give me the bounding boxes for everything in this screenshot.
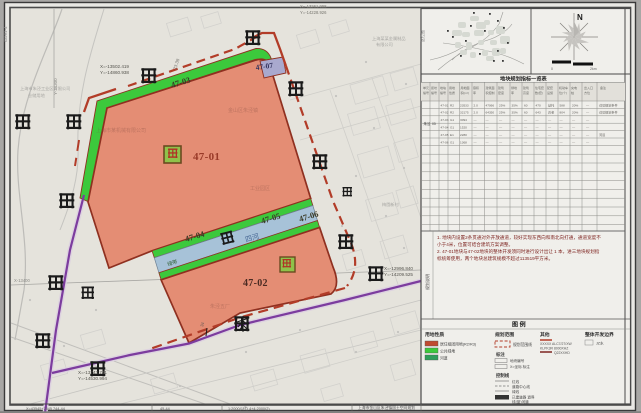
svg-text:积控制: 积控制 [486,90,495,95]
svg-text:45-44: 45-44 [160,407,170,411]
svg-text:Y=-14209.525: Y=-14209.525 [384,272,413,277]
svg-text:道路中心线: 道路中心线 [512,384,530,389]
svg-text:公共绿地: 公共绿地 [440,349,455,354]
svg-text:建筑: 建筑 [498,85,504,90]
svg-text:方位: 方位 [584,90,590,95]
svg-text:47-05: 47-05 [441,133,449,137]
svg-text:47-06: 47-06 [441,140,449,144]
svg-text:标统筹使用，两个地块总建筑规模不超过113519平方米。: 标统筹使用，两个地块总建筑规模不超过113519平方米。 [437,255,553,262]
svg-text:单元: 单元 [423,85,429,90]
svg-text:率: 率 [473,90,476,95]
svg-text:居住组团用地(R2/R3): 居住组团用地(R2/R3) [440,342,477,347]
svg-text:1:2000(1代) 4+4:2000(2): 1:2000(1代) 4+4:2000(2) [228,406,270,411]
svg-text:643: 643 [536,111,541,115]
svg-text:线(蓝)河道: 线(蓝)河道 [512,399,529,404]
svg-text:控制线: 控制线 [496,372,510,379]
svg-text:47066: 47066 [486,103,495,107]
svg-text:25%: 25% [499,111,505,115]
svg-text:绿线: 绿线 [512,389,520,394]
svg-text:2km: 2km [590,67,597,71]
svg-text:G1: G1 [450,140,454,144]
svg-text:建筑: 建筑 [523,85,529,90]
svg-text:配套: 配套 [547,85,553,90]
svg-text:Y=-14860.938: Y=-14860.938 [100,70,129,75]
svg-text:仓储用地: 仓储用地 [28,92,46,99]
svg-text:图 例: 图 例 [512,321,526,329]
svg-text:河道: 河道 [440,356,448,361]
svg-text:G1: G1 [450,118,454,122]
svg-text:2.0: 2.0 [474,111,479,115]
svg-text:整体开发边界: 整体开发边界 [584,331,614,338]
svg-text:详见规划条件: 详见规划条件 [599,110,618,115]
svg-text:地块: 地块 [440,85,446,90]
svg-text:0: 0 [551,67,553,71]
svg-text:E1: E1 [450,133,454,137]
svg-text:JZ水: JZ水 [596,341,604,346]
svg-text:金山区朱泾镇: 金山区朱泾镇 [228,107,258,114]
svg-text:47-01: 47-01 [193,151,220,163]
svg-text:标注: 标注 [495,351,505,358]
svg-text:20%: 20% [572,111,578,115]
svg-text:2.0: 2.0 [474,103,479,107]
svg-text:47-03: 47-03 [441,118,449,122]
svg-text:工业园区: 工业园区 [250,185,270,192]
svg-text:规划范围: 规划范围 [495,331,514,338]
svg-text:X=-13261.998: X=-13261.998 [300,4,327,9]
svg-text:X=-13743.741: X=-13743.741 [78,370,107,375]
svg-text:性质: 性质 [449,90,455,95]
svg-text:X=43545+7545 744-44: X=43545+7545 744-44 [26,407,65,411]
svg-text:备注: 备注 [600,85,606,90]
svg-text:05: 05 [432,122,436,126]
svg-text:地块规划指标一览表: 地块规划指标一览表 [500,75,548,83]
svg-text:幼托: 幼托 [548,102,554,107]
svg-text:XXXXX ALC7/27/XW: XXXXX ALC7/27/XW [540,342,572,346]
svg-text:CD91-4: CD91-4 [3,26,8,42]
svg-text:红线: 红线 [512,379,520,384]
svg-text:率: 率 [511,90,514,95]
svg-text:建筑面: 建筑面 [486,85,495,90]
svg-text:35%: 35% [512,103,518,107]
svg-text:R2: R2 [450,111,454,115]
svg-text:R2: R2 [450,103,454,107]
svg-text:X-13400: X-13400 [14,278,31,283]
svg-text:机动车: 机动车 [559,85,568,90]
svg-text:养老: 养老 [548,110,554,115]
svg-text:朱泾五厂: 朱泾五厂 [210,303,230,310]
svg-text:KLPK3R 8000XHZ: KLPK3R 8000XHZ [540,347,568,351]
svg-text:容积: 容积 [473,85,479,90]
svg-text:Y=-14228.926: Y=-14228.926 [300,10,327,15]
svg-text:规划范围线: 规划范围线 [513,342,532,347]
svg-text:64350: 64350 [486,111,495,115]
svg-text:朱泾: 朱泾 [424,121,431,126]
svg-text:Y=-14530.994: Y=-14530.994 [78,376,107,381]
svg-text:已建道路 退界: 已建道路 退界 [512,395,535,400]
svg-text:23533: 23533 [460,103,469,107]
svg-text:区位图: 区位图 [419,30,425,42]
svg-text:G1: G1 [450,126,454,130]
svg-text:470: 470 [536,103,541,107]
svg-text:数(套): 数(套) [535,90,543,95]
svg-text:1368: 1368 [460,140,467,144]
svg-text:详见规划条件: 详见规划条件 [599,102,618,107]
svg-text:1. 地块内设置2条贯通对外开放通道，较好实现东西向和南北向: 1. 地块内设置2条贯通对外开放通道，较好实现东西向和南北向打通，通道宽度不 [437,234,601,241]
svg-text:绿地: 绿地 [511,85,517,90]
svg-text:60: 60 [524,111,528,115]
svg-text:3094: 3094 [460,118,467,122]
svg-text:河道: 河道 [599,132,605,137]
svg-text:位(个): 位(个) [559,90,567,95]
svg-text:上海市某机械有限公司: 上海市某机械有限公司 [96,127,146,134]
svg-text:其他: 其他 [540,331,550,338]
svg-text:588: 588 [560,103,565,107]
svg-text:地块编号: 地块编号 [510,358,525,363]
svg-text:设施: 设施 [547,90,553,95]
svg-text:用地性质: 用地性质 [424,331,444,338]
svg-text:25%: 25% [499,103,505,107]
svg-text:47-02: 47-02 [441,111,449,115]
svg-text:编号: 编号 [431,90,437,95]
svg-text:编号: 编号 [440,90,446,95]
svg-text:上海市朱泾工业区有限公司: 上海市朱泾工业区有限公司 [20,85,70,92]
svg-text:梅園新村: 梅園新村 [382,201,400,208]
svg-text:上海某某金属制品: 上海某某金属制品 [372,35,406,42]
svg-text:2. 47-01地块与47-02地块的整体开发须同时进行设计: 2. 47-01地块与47-02地块的整体开发须同时进行设计出让 1 本，进三地… [437,248,600,255]
svg-text:Q22XXHD: Q22XXHD [554,351,570,355]
svg-text:编号: 编号 [423,90,429,95]
svg-text:47-02: 47-02 [243,278,268,289]
svg-text:2280: 2280 [460,133,467,137]
svg-text:密度: 密度 [498,90,504,95]
svg-text:桩: 桩 [571,90,574,95]
svg-text:47-04: 47-04 [441,126,449,130]
svg-text:32175: 32175 [460,111,469,115]
svg-text:规划说明: 规划说明 [424,274,430,290]
svg-text:小于4米，位置可结合建筑方案调整。: 小于4米，位置可结合建筑方案调整。 [437,241,513,248]
svg-text:20%: 20% [572,103,578,107]
svg-text:X=-12996.840: X=-12996.840 [384,266,413,271]
svg-text:出入口: 出入口 [584,85,593,90]
svg-text:用地面: 用地面 [461,85,470,90]
svg-text:N: N [577,13,583,22]
svg-text:高度: 高度 [523,90,529,95]
svg-text:X=坐标 标注: X=坐标 标注 [510,364,530,369]
svg-text:X=-13502.419: X=-13502.419 [100,64,129,69]
svg-text:1520: 1520 [460,126,467,130]
svg-text:积(m²): 积(m²) [461,90,470,95]
svg-text:充电: 充电 [571,85,577,90]
svg-text:上海市金山区朱泾镇国土空间规划: 上海市金山区朱泾镇国土空间规划 [358,405,415,410]
svg-text:60: 60 [524,103,528,107]
svg-text:用地: 用地 [449,85,455,90]
svg-text:住宅套: 住宅套 [535,85,544,90]
svg-text:47-01: 47-01 [441,103,449,107]
svg-text:有限公司: 有限公司 [376,41,393,48]
svg-text:804: 804 [560,111,565,115]
svg-text:35%: 35% [512,111,518,115]
svg-text:街坊: 街坊 [431,85,437,90]
